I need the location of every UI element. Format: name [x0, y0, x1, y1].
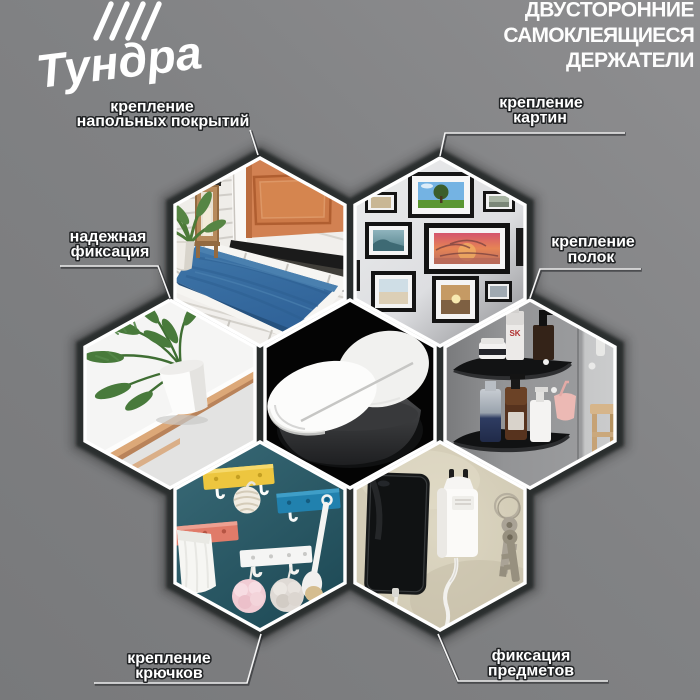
- svg-text:предметов: предметов: [488, 663, 574, 680]
- svg-text:ДВУСТОРОННИЕ: ДВУСТОРОННИЕ: [525, 0, 695, 22]
- svg-text:фиксация: фиксация: [71, 244, 150, 261]
- svg-text:крепление: крепление: [551, 234, 635, 251]
- svg-text:картин: картин: [513, 110, 567, 127]
- svg-text:САМОКЛЕЯЩИЕСЯ: САМОКЛЕЯЩИЕСЯ: [503, 24, 694, 47]
- svg-text:крючков: крючков: [135, 665, 203, 682]
- svg-text:ДЕРЖАТЕЛИ: ДЕРЖАТЕЛИ: [566, 49, 694, 72]
- svg-text:SK: SK: [509, 329, 520, 338]
- svg-text:напольных покрытий: напольных покрытий: [77, 113, 250, 130]
- svg-text:полок: полок: [568, 249, 616, 266]
